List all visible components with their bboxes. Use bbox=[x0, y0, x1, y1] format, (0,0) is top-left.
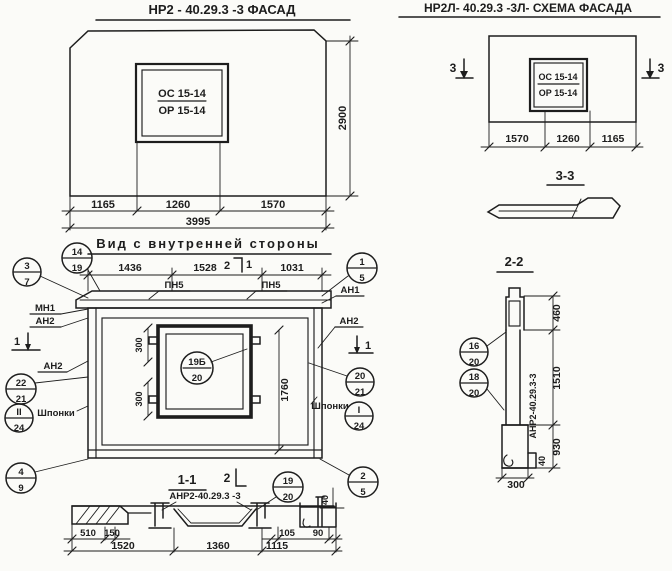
section-3-3-profile-inner bbox=[499, 199, 581, 218]
drawing-canvas: НР2 - 40.29.3 -3 ФАСАД ОС 15-14 ОР 15-14… bbox=[0, 0, 672, 571]
label-an2-b: АН2 bbox=[43, 361, 62, 372]
section-2-2-foot-hook bbox=[504, 455, 513, 466]
strip-dim-510: 510 bbox=[80, 528, 96, 539]
label-an2-a-leader bbox=[61, 318, 88, 327]
strip-dim-1115: 1115 bbox=[266, 540, 288, 552]
schema-window-inner bbox=[534, 63, 583, 107]
inner-pn5-leader-2 bbox=[247, 291, 256, 299]
facade-dim-total: 3995 bbox=[186, 216, 210, 228]
callout-19-20-bottom: 20 bbox=[283, 492, 294, 503]
schema-window-outer bbox=[530, 59, 587, 111]
inner-mark-1-left: 1 bbox=[14, 336, 20, 348]
callout-4-9-bottom: 9 bbox=[18, 483, 23, 494]
section-1-1-title: 1-1 bbox=[178, 472, 197, 487]
callout-2-5-bottom: 5 bbox=[360, 487, 366, 498]
inner-mark-2-bracket bbox=[234, 258, 242, 272]
inner-dim-1760: 1760 bbox=[279, 378, 291, 402]
label-an2-b-leader bbox=[67, 361, 88, 372]
section-2-2-anchor-inner bbox=[509, 301, 520, 326]
callout-18-20-leader bbox=[487, 389, 504, 410]
callout-14-19-leader bbox=[88, 270, 100, 291]
strip-dim-90: 90 bbox=[313, 528, 324, 539]
callout-16-20-bottom: 20 bbox=[469, 357, 480, 368]
section-2-2-dim-40: 40 bbox=[537, 456, 547, 466]
callout-18-20-bottom: 20 bbox=[469, 388, 480, 399]
strip-right-block-hook bbox=[303, 519, 310, 527]
strip-dim-105: 105 bbox=[279, 528, 296, 539]
callout-19b-20-bottom: 20 bbox=[192, 373, 203, 384]
callout-22-21-leader bbox=[35, 377, 88, 383]
callout-14-19-top: 14 bbox=[72, 247, 83, 258]
callout-20-21-leader bbox=[309, 363, 347, 376]
schema-section-mark-3-right: 3 bbox=[658, 61, 665, 75]
callout-3-7-leader bbox=[40, 276, 88, 298]
section-1-1-label: АНР2-40.29.3 -3 bbox=[169, 491, 240, 502]
inner-mark-1-right: 1 bbox=[365, 340, 371, 352]
label-an1: АН1 bbox=[340, 285, 360, 296]
section-2-2-dim-460: 460 bbox=[551, 304, 563, 322]
section-2-2-stem bbox=[502, 330, 528, 425]
facade-window-inner bbox=[142, 70, 222, 136]
strip-dim-1520: 1520 bbox=[111, 540, 135, 552]
facade-dim-1570: 1570 bbox=[261, 199, 285, 211]
label-an2-c-leader bbox=[318, 327, 335, 348]
strip-left-block bbox=[72, 506, 128, 524]
drawing-sheet: НР2 - 40.29.3 -3 ФАСАД ОС 15-14 ОР 15-14… bbox=[0, 0, 672, 571]
inner-pn5-label-1: ПН5 bbox=[165, 280, 185, 291]
callout-4-9-leader bbox=[35, 459, 88, 472]
label-shponki-left-leader bbox=[77, 406, 88, 411]
facade-window-label-top: ОС 15-14 bbox=[158, 88, 207, 100]
inner-mark-1: 1 bbox=[246, 259, 252, 271]
schema-dim-1165: 1165 bbox=[602, 133, 625, 145]
section-2-2-dim-1510: 1510 bbox=[551, 366, 563, 390]
section-3-3-title: 3-3 bbox=[556, 168, 575, 183]
inner-top-band bbox=[76, 291, 331, 308]
inner-opening-inner-frame bbox=[166, 334, 243, 409]
facade-title: НР2 - 40.29.3 -3 ФАСАД bbox=[148, 2, 296, 17]
section-2-2-dim-300: 300 bbox=[507, 479, 525, 491]
inner-opening-heavy-frame bbox=[158, 326, 251, 417]
section-2-2-title: 2-2 bbox=[505, 254, 524, 269]
callout-16-20-top: 16 bbox=[469, 341, 480, 352]
callout-19-20-top: 19 bbox=[283, 476, 294, 487]
label-mn1: МН1 bbox=[35, 303, 56, 314]
callout-3-7-top: 3 bbox=[24, 261, 29, 272]
callout-1-5-top: 1 bbox=[359, 257, 365, 268]
strip-dim-1360: 1360 bbox=[206, 540, 230, 552]
strip-left-block-hatch bbox=[76, 506, 120, 524]
inner-dim-300-top: 300 bbox=[134, 337, 144, 352]
inner-dim-1436: 1436 bbox=[118, 262, 142, 274]
label-mn1-leader bbox=[61, 309, 88, 314]
strip-right-block bbox=[300, 497, 336, 527]
strip-dim-150: 150 bbox=[104, 528, 120, 539]
facade-view: НР2 - 40.29.3 -3 ФАСАД ОС 15-14 ОР 15-14… bbox=[62, 2, 358, 232]
inner-dim-300-bottom: 300 bbox=[134, 391, 144, 406]
callout-22-21-top: 22 bbox=[16, 378, 27, 389]
callout-4-9-top: 4 bbox=[18, 467, 24, 478]
section-1-1-mark-2-bracket bbox=[236, 469, 246, 486]
callout-2-5-leader bbox=[320, 459, 349, 475]
callout-ii-24-top: II bbox=[16, 407, 21, 418]
callout-20-21-top: 20 bbox=[355, 371, 366, 382]
callout-2-5-top: 2 bbox=[360, 471, 365, 482]
section-2-2-lower-block bbox=[502, 425, 528, 468]
inner-view: Вид с внутренней стороны 1436 1528 1031 … bbox=[5, 236, 378, 508]
section-2-2-bottom-extensions bbox=[502, 468, 528, 478]
callout-i-24-top: I bbox=[358, 405, 361, 416]
facade-window-label-bottom: ОР 15-14 bbox=[158, 105, 206, 117]
inner-mark-2: 2 bbox=[224, 260, 230, 272]
callout-18-20-top: 18 bbox=[469, 372, 480, 383]
inner-pn5-leader-1 bbox=[149, 291, 159, 299]
schema-window-label-bottom: ОР 15-14 bbox=[539, 88, 578, 98]
inner-dim-1528: 1528 bbox=[193, 262, 217, 274]
section-3-3-profile bbox=[488, 198, 620, 218]
callout-14-19-bottom: 19 bbox=[72, 263, 83, 274]
facade-dim-1165: 1165 bbox=[91, 199, 115, 211]
section-2-2: 2-2 АНР2-40.29.3-3 460 1510 930 40 300 1… bbox=[460, 254, 563, 491]
section-2-2-label-rotated: АНР2-40.29.3-3 bbox=[528, 373, 538, 438]
callout-ii-24-bottom: 24 bbox=[14, 423, 25, 434]
callout-20-21-bottom: 21 bbox=[355, 387, 366, 398]
schema-view: НР2Л- 40.29.3 -3Л- СХЕМА ФАСАДА ОС 15-14… bbox=[399, 1, 665, 151]
section-3-3: 3-3 bbox=[488, 168, 620, 218]
label-shponki-left: Шпонки bbox=[37, 408, 75, 419]
label-an2-c: АН2 bbox=[339, 316, 358, 327]
label-an1-leader bbox=[322, 296, 336, 303]
schema-dim-1260: 1260 bbox=[556, 133, 580, 145]
section-2-2-dim-930: 930 bbox=[551, 438, 563, 456]
label-an2-a: АН2 bbox=[35, 316, 54, 327]
inner-pn5-label-2: ПН5 bbox=[262, 280, 282, 291]
facade-window-outer bbox=[136, 64, 228, 142]
schema-section-mark-3-left: 3 bbox=[450, 61, 457, 75]
callout-19b-20-top: 19Б bbox=[188, 357, 206, 368]
section-1-1: 1-1 2 АНР2-40.29.3 -3 19 20 510 150 105 … bbox=[64, 469, 342, 555]
inner-dim-1031: 1031 bbox=[280, 262, 304, 274]
strip-pan-inner bbox=[178, 509, 252, 523]
inner-view-title: Вид с внутренней стороны bbox=[96, 236, 320, 251]
callout-i-24-bottom: 24 bbox=[354, 421, 365, 432]
section-1-1-mark-2: 2 bbox=[224, 471, 231, 485]
callout-1-5-bottom: 5 bbox=[359, 273, 365, 284]
facade-dim-1260: 1260 bbox=[166, 199, 190, 211]
schema-window-label-top: ОС 15-14 bbox=[538, 72, 577, 82]
callout-19b-20-leader bbox=[211, 349, 247, 362]
schema-dim-1570: 1570 bbox=[505, 133, 529, 145]
schema-title: НР2Л- 40.29.3 -3Л- СХЕМА ФАСАДА bbox=[424, 1, 632, 15]
callout-16-20-leader bbox=[487, 332, 506, 346]
label-shponki-right: Шпонки bbox=[311, 401, 349, 412]
callout-3-7-bottom: 7 bbox=[24, 277, 29, 288]
facade-dim-2900: 2900 bbox=[337, 106, 349, 130]
